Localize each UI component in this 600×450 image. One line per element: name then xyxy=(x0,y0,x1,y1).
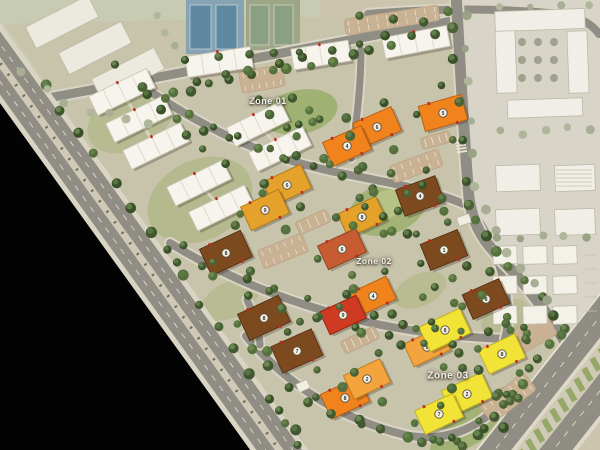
svg-text:7: 7 xyxy=(296,349,299,355)
unit-number-badge: 2 xyxy=(463,390,471,398)
unit-number-badge: 6 xyxy=(283,181,291,189)
svg-text:4: 4 xyxy=(372,294,375,300)
unit-number-badge: 8 xyxy=(498,350,506,358)
svg-text:8: 8 xyxy=(225,251,228,257)
unit-number-badge: 6 xyxy=(338,245,346,253)
svg-text:6: 6 xyxy=(376,125,379,131)
svg-text:6: 6 xyxy=(341,247,344,253)
svg-text:2: 2 xyxy=(366,377,369,383)
svg-text:2: 2 xyxy=(466,392,469,398)
unit-number-badge: 2 xyxy=(363,375,371,383)
masterplan-rendering: 5644828698698874188827 Zone 01 Zone 02 Z… xyxy=(0,0,600,450)
unit-number-badge: 7 xyxy=(293,347,301,355)
unit-number-badge: 8 xyxy=(358,213,366,221)
svg-text:8: 8 xyxy=(444,328,447,334)
svg-text:1: 1 xyxy=(443,248,446,254)
unit-number-badge: 8 xyxy=(441,326,449,334)
unit-number-badge: 8 xyxy=(260,314,268,322)
svg-text:8: 8 xyxy=(344,396,347,402)
masterplan-canvas: 5644828698698874188827 xyxy=(0,0,600,450)
svg-text:5: 5 xyxy=(442,111,445,117)
unit-number-badge: 8 xyxy=(222,249,230,257)
svg-text:9: 9 xyxy=(264,208,267,214)
unit-number-badge: 7 xyxy=(435,410,443,418)
unit-number-badge: 9 xyxy=(261,206,269,214)
unit-number-badge: 1 xyxy=(440,246,448,254)
sports-courts xyxy=(186,0,300,54)
unit-number-badge: 8 xyxy=(341,394,349,402)
svg-text:8: 8 xyxy=(501,352,504,358)
unit-number-badge: 4 xyxy=(369,292,377,300)
unit-number-badge: 4 xyxy=(416,192,424,200)
unit-number-badge: 4 xyxy=(343,142,351,150)
svg-text:9: 9 xyxy=(342,313,345,319)
svg-text:4: 4 xyxy=(346,144,349,150)
svg-text:4: 4 xyxy=(419,194,422,200)
unit-number-badge: 9 xyxy=(339,311,347,319)
svg-text:8: 8 xyxy=(263,316,266,322)
unit-number-badge: 5 xyxy=(439,109,447,117)
svg-text:6: 6 xyxy=(286,183,289,189)
svg-text:7: 7 xyxy=(438,412,441,418)
unit-number-badge: 6 xyxy=(373,123,381,131)
svg-text:8: 8 xyxy=(361,215,364,221)
